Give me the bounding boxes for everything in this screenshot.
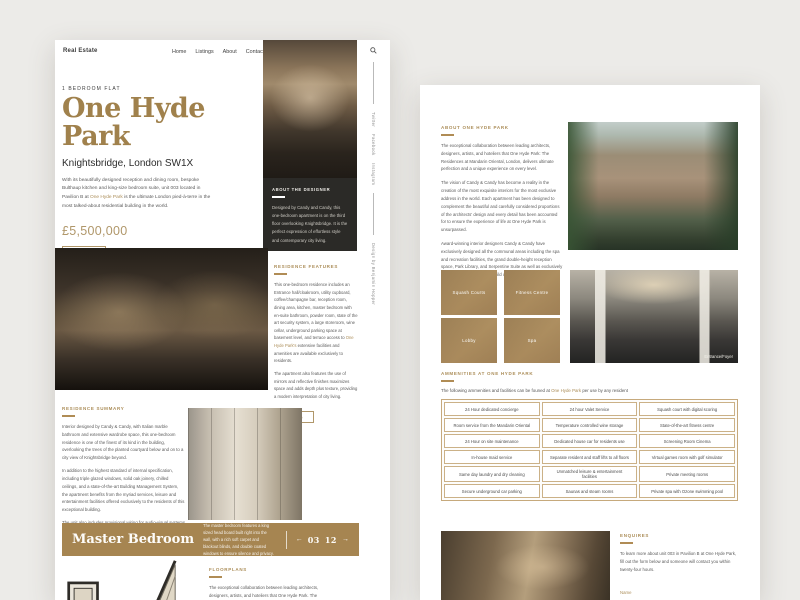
amenity-cell: Same day laundry and dry cleaning [444,466,540,482]
entrance-foyer-photo[interactable]: Entrance/Foyer [570,270,738,363]
residence-summary-heading: RESIDENCE SUMMARY [62,406,185,411]
residence-summary-para: In addition to the highest standard of i… [62,467,185,514]
residence-features-para: The apartment also features the use of m… [274,370,358,401]
listing-subtitle: Knightsbridge, London SW1X [62,158,222,169]
listing-eyebrow: 1 BEDROOM FLAT [62,86,222,92]
divider [441,134,454,136]
floorplans-section: FLOORPLANS The exceptional collaboration… [209,567,337,600]
banner-title: Master Bedroom [72,532,194,547]
about-heading: ABOUT ONE HYDE PARK [441,125,563,130]
about-designer-heading: ABOUT THE DESIGNER [272,187,348,192]
amenity-cell: Private meeting rooms [639,466,735,482]
divider [373,193,374,235]
listing-intro: With its beautifully designed reception … [62,177,215,212]
table-row: In-house maid service Separate resident … [444,450,735,464]
divider [274,273,287,275]
amenity-cell: Virtual games room with golf simulator [639,450,735,464]
amenities-section: AMMENITIES AT ONE HYDE PARK The followin… [441,371,738,501]
table-row: Room service from the Mandarin Oriental … [444,418,735,432]
amenity-cell: Temperature controlled wine storage [542,418,638,432]
gallery-tile[interactable]: Squash Courts [441,270,497,315]
gallery-tile-label: Fitness Centre [516,290,549,295]
floorplan-drawing-1 [66,580,102,600]
amenities-heading: AMMENITIES AT ONE HYDE PARK [441,371,738,376]
slide-pager: ← 03 12 → [296,535,349,545]
designer-credit: Design by Benjamin Hopper [371,243,376,305]
one-hyde-park-link[interactable]: One Hyde Park [551,388,581,393]
listing-page: Real Estate HomeListingsAboutContact ABO… [55,40,390,600]
about-body: The exceptional collaboration between le… [441,142,563,279]
table-row: Secure underground car parking Saunas an… [444,484,735,498]
amenities-intro: The following ammenities and facilities … [441,388,738,393]
pager-total: 12 [325,535,337,545]
gallery-tile[interactable]: Lobby [441,318,497,363]
amenity-cell: Separate resident and staff lifts to all… [542,450,638,464]
design-canvas: Real Estate HomeListingsAboutContact ABO… [0,0,800,600]
floorplans-heading: FLOORPLANS [209,567,337,572]
amenity-cell: Squash court with digital scoring [639,402,735,416]
prev-arrow-icon[interactable]: ← [296,536,303,543]
price: £5,500,000 [62,224,222,238]
divider [620,542,633,544]
page-title: One Hyde Park [62,95,222,152]
gallery-tile-label: Squash Courts [453,290,486,295]
master-bedroom-banner: Master Bedroom The master bedroom featur… [62,523,359,556]
amenities-intro-text: per use by any resident [581,388,628,393]
about-section: ABOUT ONE HYDE PARK The exceptional coll… [441,125,563,285]
about-designer-body: Designed by Candy and Candy, this one-be… [272,204,348,245]
form-field-label: Name [620,590,631,595]
table-row: 24 Hour dedicated concierge 24 hour Vale… [444,402,735,416]
nav-link[interactable]: Contact [246,49,265,55]
divider [272,196,285,198]
residence-features-para: This one-bedroom residence includes an E… [274,281,358,365]
floorplans-body: The exceptional collaboration between le… [209,584,337,600]
social-link[interactable]: Instagram [371,163,376,185]
features-text: This one-bedroom residence includes an E… [274,282,358,340]
nav-link[interactable]: Listings [195,49,213,55]
divider [209,576,222,578]
social-links: TwitterFacebookInstagram [371,112,376,185]
next-arrow-icon[interactable]: → [342,536,349,543]
enquiries-section: ENQUIRES To learn more about unit 003 in… [620,533,738,600]
amenity-cell: Unmatched leisure & entertainment facili… [542,466,638,482]
master-bedroom-photo [188,408,302,520]
table-row: 24 Hour on site maintenance Dedicated ho… [444,434,735,448]
amenity-cell: Room service from the Mandarin Oriental [444,418,540,432]
gallery-tile[interactable]: Fitness Centre [504,270,560,315]
listing-headline: 1 BEDROOM FLAT One Hyde Park Knightsbrid… [62,86,222,259]
amenity-cell: Secure underground car parking [444,484,540,498]
amenity-cell: Dedicated house car for residents use [542,434,638,448]
amenity-cell: 24 hour Valet Service [542,402,638,416]
reception-lounge-photo [441,531,610,600]
social-link[interactable]: Twitter [371,112,376,127]
nav-link[interactable]: Home [172,49,186,55]
gallery-tile-label: Spa [528,338,537,343]
hero-dining-photo [263,40,357,178]
enquiries-body: To learn more about unit 003 in Pavilion… [620,550,738,573]
gallery-tile-label: Lobby [462,338,475,343]
amenity-cell: Private spa with Ozone swimming pool [639,484,735,498]
entrance-foyer-label: Entrance/Foyer [704,354,733,359]
residence-features-section: RESIDENCE FEATURES This one-bedroom resi… [274,264,358,424]
amenity-cell: State-of-the-art fitness centre [639,418,735,432]
amenity-gallery: Squash Courts Fitness Centre Lobby Spa [441,270,560,363]
amenity-cell: In-house maid service [444,450,540,464]
enquiry-form: Name Email Address Message [620,581,738,600]
building-exterior-photo [568,122,738,250]
amenities-intro-text: The following ammenities and facilities … [441,388,551,393]
divider [286,531,287,549]
amenities-table: 24 Hour dedicated concierge 24 hour Vale… [441,399,738,501]
social-link[interactable]: Facebook [371,134,376,156]
about-page: ABOUT ONE HYDE PARK The exceptional coll… [420,85,760,600]
residence-summary-para: Interior designed by Candy & Candy, with… [62,423,185,462]
pager-current: 03 [308,535,320,545]
search-icon[interactable] [370,47,377,54]
about-para: The vision of Candy & Candy has become a… [441,179,563,234]
main-nav: HomeListingsAboutContact [172,49,264,55]
residence-features-heading: RESIDENCE FEATURES [274,264,358,269]
living-room-photo [55,248,268,390]
enquiries-heading: ENQUIRES [620,533,738,538]
form-field[interactable]: Name [620,581,738,600]
brand-logo[interactable]: Real Estate [63,48,98,54]
table-row: Same day laundry and dry cleaning Unmatc… [444,466,735,482]
divider [441,380,454,382]
amenity-cell: 24 Hour on site maintenance [444,434,540,448]
divider [373,62,374,104]
about-para: The exceptional collaboration between le… [441,142,563,173]
about-designer-panel: ABOUT THE DESIGNER Designed by Candy and… [263,178,357,251]
banner-body: The master bedroom features a king sized… [203,522,274,558]
floorplan-drawing-2 [135,558,179,600]
amenity-cell: 24 Hour dedicated concierge [444,402,540,416]
side-rail: TwitterFacebookInstagram Design by Benja… [357,40,390,350]
amenity-cell: Saunas and steam rooms [542,484,638,498]
amenity-cell: Screening Room Cinema [639,434,735,448]
gallery-tile[interactable]: Spa [504,318,560,363]
one-hyde-park-link[interactable]: One Hyde Park [90,195,123,200]
nav-link[interactable]: About [223,49,237,55]
divider [62,415,75,417]
